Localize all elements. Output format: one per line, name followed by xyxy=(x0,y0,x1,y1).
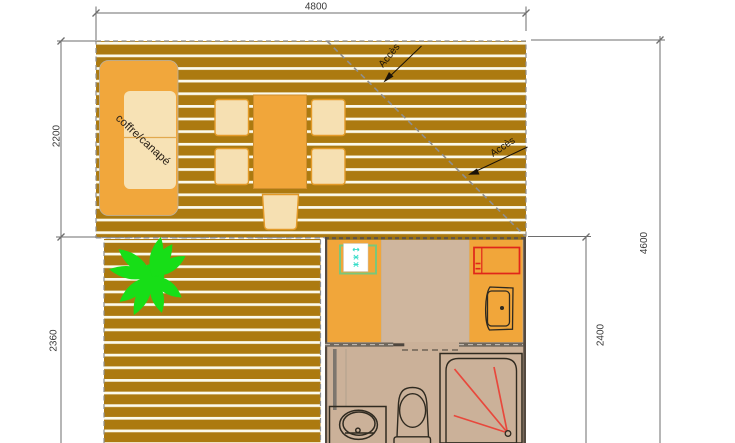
svg-text:4600: 4600 xyxy=(639,231,650,254)
svg-text:4800: 4800 xyxy=(305,2,328,13)
svg-text:2400: 2400 xyxy=(596,323,607,346)
svg-text:2360: 2360 xyxy=(49,329,60,352)
svg-text:2200: 2200 xyxy=(52,124,63,147)
